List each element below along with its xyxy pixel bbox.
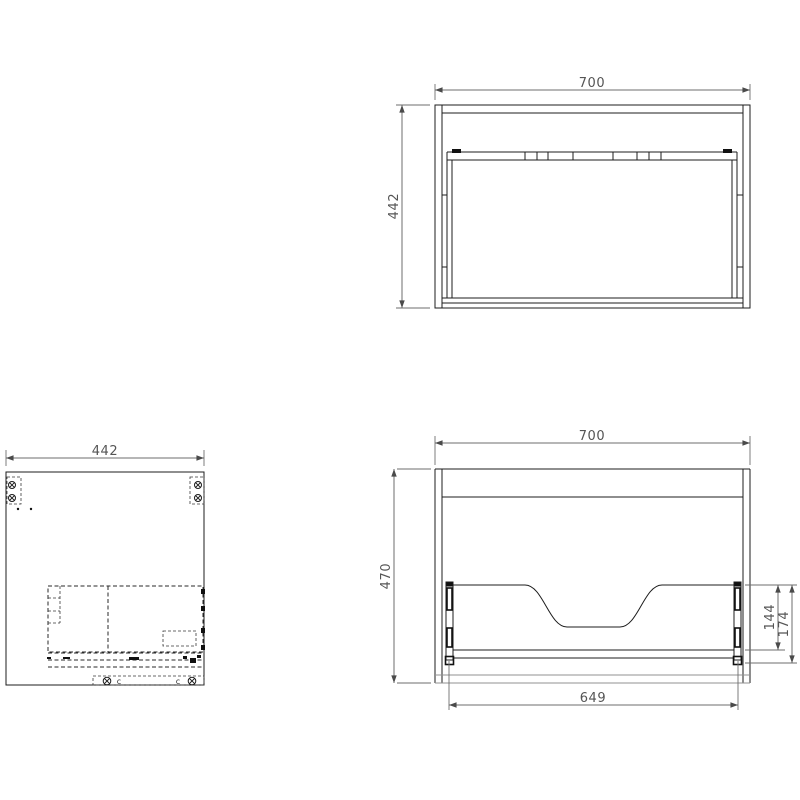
top-view-back-rail	[442, 149, 743, 298]
cam-letter-right: c	[176, 677, 180, 686]
dim-side-depth-value: 442	[92, 444, 119, 459]
dim-panel-height-value: 144	[763, 604, 778, 631]
dim-front-width: 700	[435, 429, 750, 465]
dim-front-inner-width: 649	[449, 661, 738, 710]
corner-bracket-left	[452, 149, 461, 153]
dowel-dots	[17, 508, 32, 510]
drawer-slide-left	[446, 582, 454, 665]
technical-drawing-canvas: 700 442	[0, 0, 800, 800]
dim-top-depth-value: 442	[387, 193, 402, 220]
dim-front-inner-width-value: 649	[580, 691, 607, 706]
side-view: c c 442	[6, 444, 205, 686]
dim-top-width: 700	[435, 76, 750, 100]
dim-front-height-value: 470	[379, 563, 394, 590]
dim-top-width-value: 700	[579, 76, 606, 91]
drawing-page: 700 442	[0, 0, 800, 800]
hanger-fitting-left	[7, 477, 21, 504]
drawer-runner-hidden	[47, 653, 203, 667]
side-wall-ticks	[442, 195, 743, 267]
drawer-slide-right	[734, 582, 742, 665]
cam-letter-left: c	[117, 677, 121, 686]
top-view: 700 442	[387, 76, 750, 308]
dim-front-height: 470	[379, 469, 431, 683]
dim-front-width-value: 700	[579, 429, 606, 444]
dim-rail-height-value: 174	[777, 611, 792, 638]
top-view-carcass	[435, 105, 750, 308]
hanger-fitting-right	[190, 477, 204, 504]
drawer-hidden-outline	[48, 586, 205, 652]
rail-joint-ticks	[525, 152, 661, 160]
cam-screw-icon	[103, 677, 111, 685]
corner-bracket-right	[723, 149, 732, 153]
dim-top-depth: 442	[387, 105, 430, 308]
front-view: 700 470 649 144 174	[379, 429, 797, 710]
front-view-carcass	[435, 469, 750, 683]
drawer-back-panel	[452, 585, 735, 658]
dim-side-depth: 442	[6, 444, 204, 466]
cam-screw-icon	[188, 677, 196, 685]
dim-panel-height: 144 174	[745, 585, 797, 663]
